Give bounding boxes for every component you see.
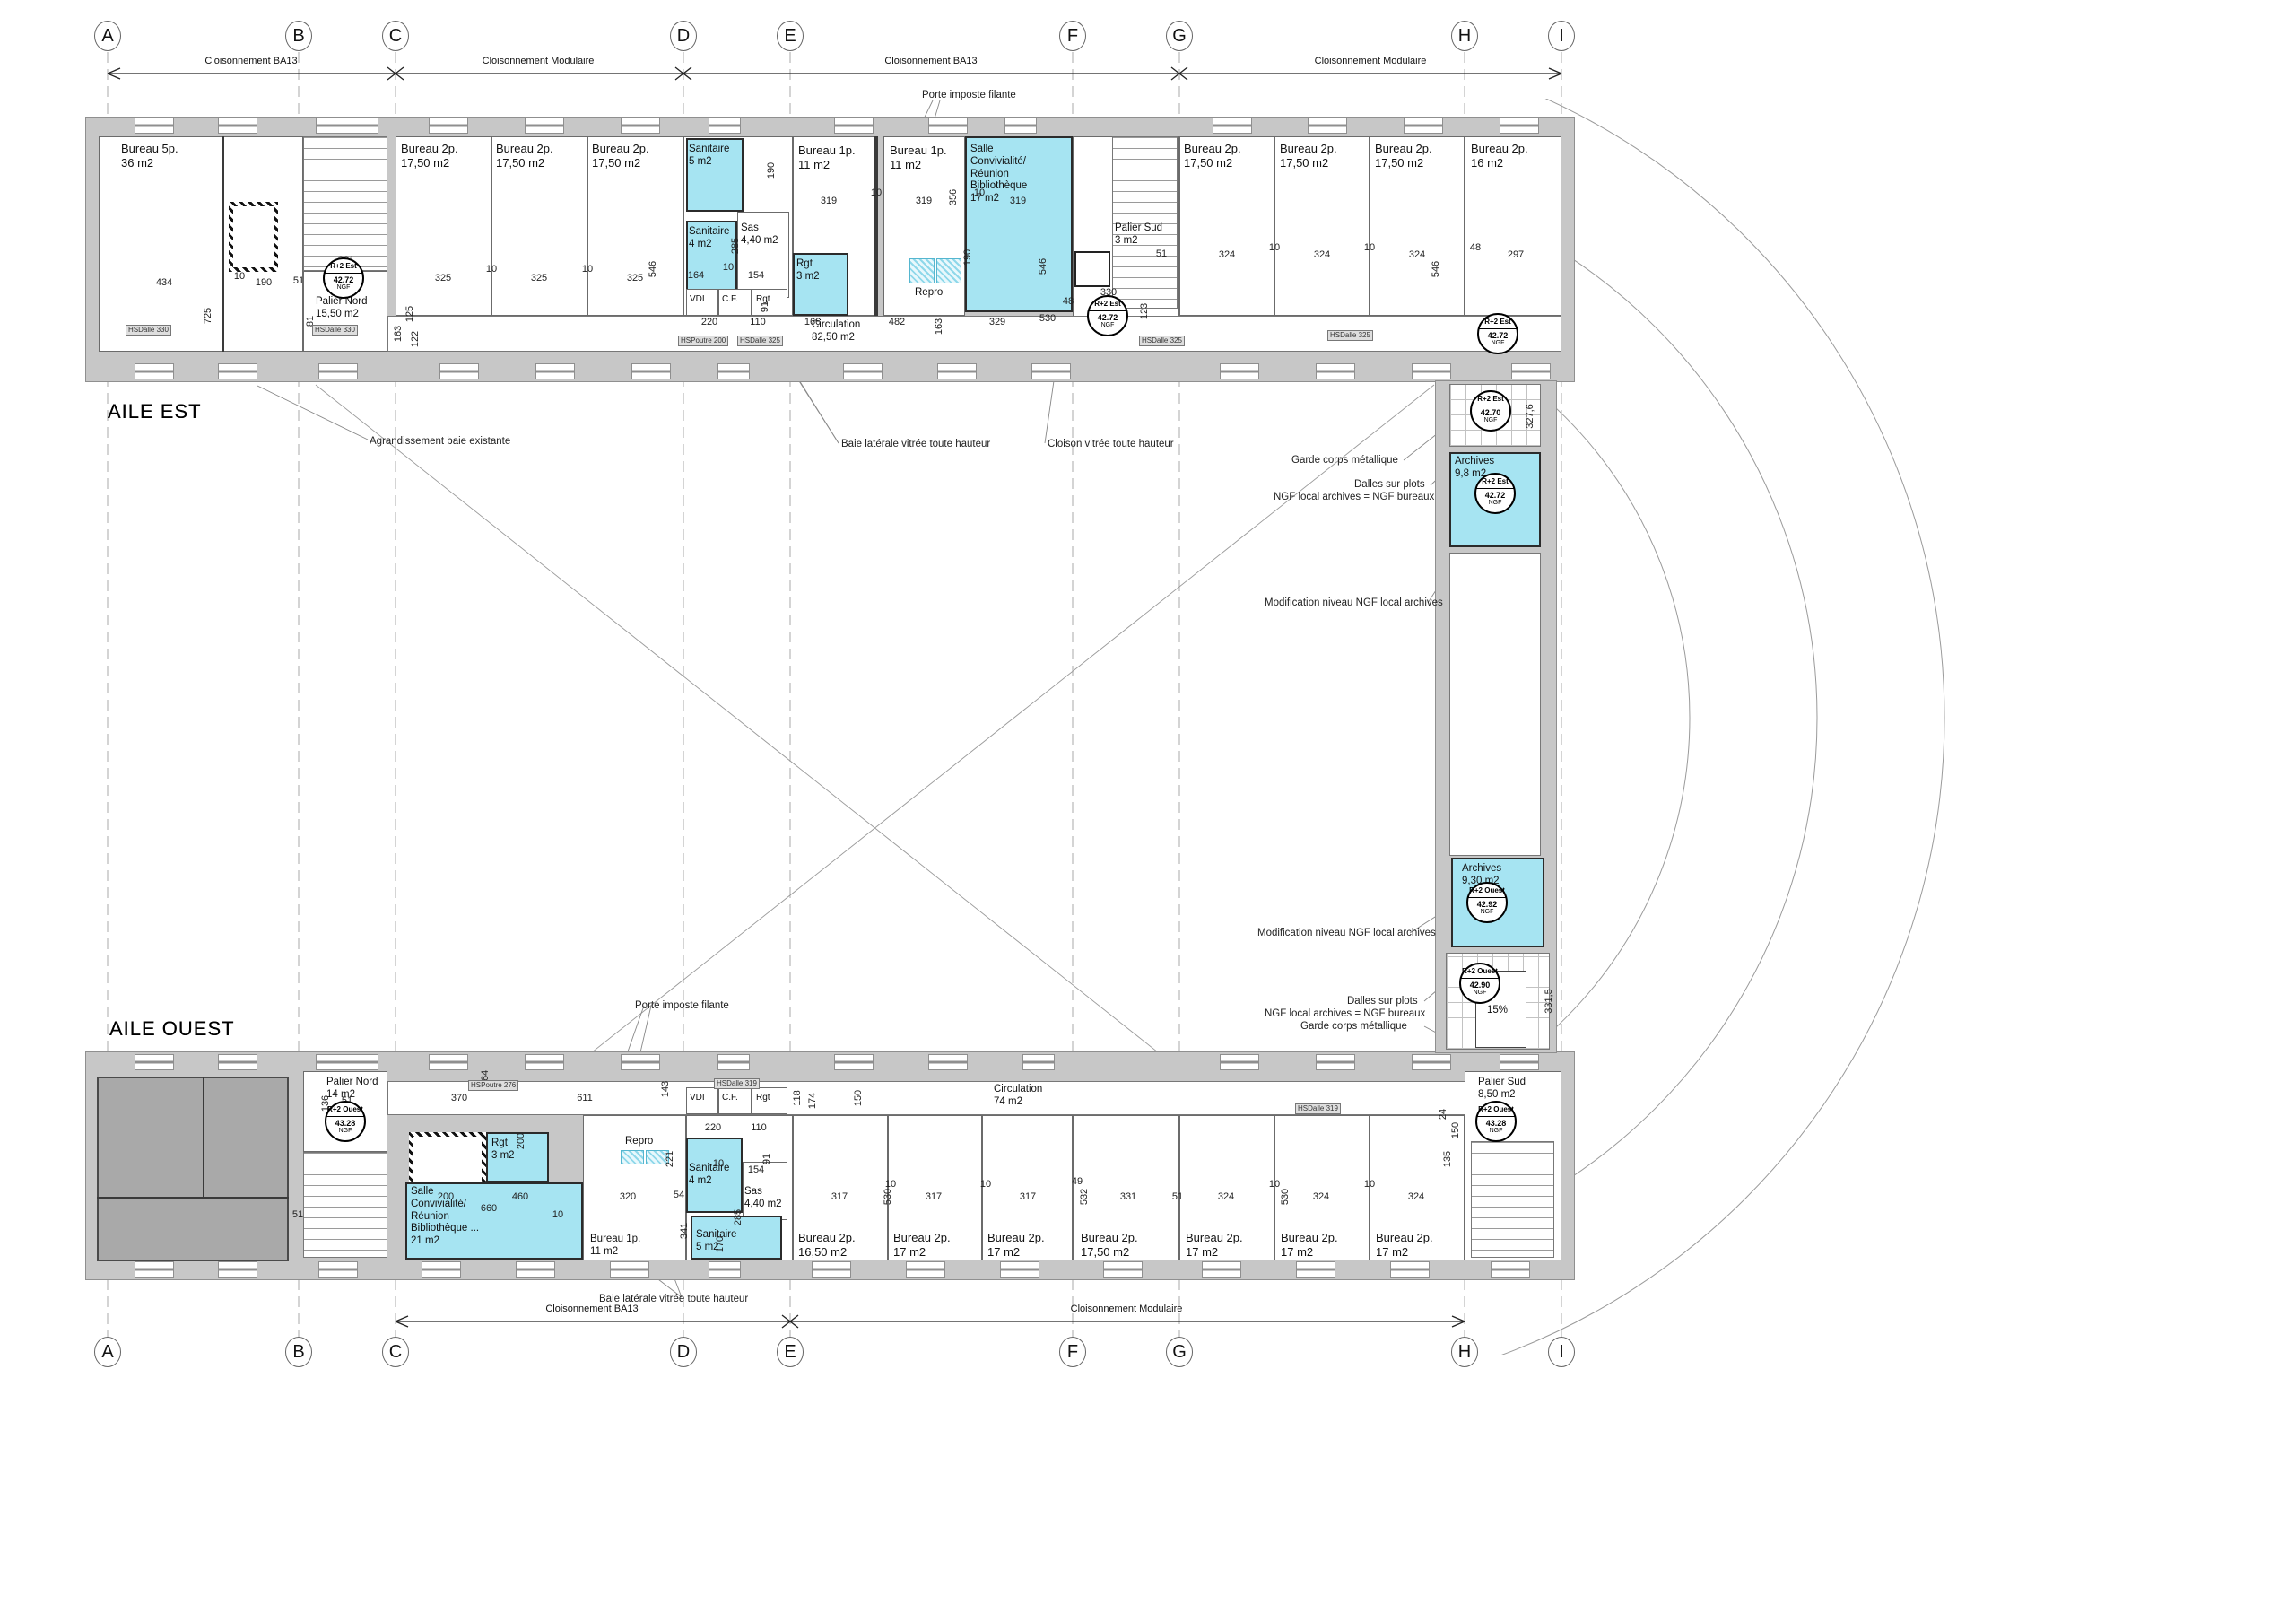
partition — [874, 136, 878, 316]
window — [709, 1261, 741, 1278]
window — [928, 118, 968, 134]
dim-arrow — [396, 1321, 408, 1327]
room-label: Bureau 2p. 17,50 m2 — [1280, 142, 1337, 170]
dim-x-mark — [1171, 67, 1187, 80]
dimension-text: 482 — [889, 317, 905, 327]
partition-dark — [203, 1077, 204, 1199]
dim-x-mark — [675, 67, 691, 80]
partition — [222, 136, 224, 352]
dimension-text: 297 — [1508, 249, 1524, 260]
room-label: Rgt — [756, 1093, 770, 1103]
annotation-text: Garde corps métallique — [1300, 1021, 1407, 1032]
hs-tag: HSPoutre 276 — [468, 1080, 518, 1091]
grid-bubble-I: I — [1548, 1337, 1575, 1367]
window — [1004, 118, 1037, 134]
dimension-text: 325 — [435, 273, 451, 283]
dimension-text: 331 — [1120, 1191, 1136, 1202]
window — [316, 118, 378, 134]
level-stamp: R+2 Ouest43.28NGF — [325, 1101, 366, 1142]
dimension-text: 331,5 — [1544, 989, 1554, 1014]
window — [218, 1054, 257, 1070]
room-label: Bureau 2p. 16 m2 — [1471, 142, 1528, 170]
dimension-text: 154 — [748, 270, 764, 281]
stamp-line: 43.28 — [1477, 1119, 1515, 1128]
window — [834, 1054, 874, 1070]
window — [429, 1054, 468, 1070]
dimension-text: 10 — [1364, 1179, 1375, 1190]
dimension-text: 123 — [1139, 303, 1150, 319]
dim-x-mark — [1171, 67, 1187, 80]
room-label: Bureau 1p. 11 m2 — [590, 1234, 640, 1259]
dimension-text: 319 — [916, 196, 932, 206]
room-label: Palier Sud 3 m2 — [1115, 222, 1162, 248]
dimension-text: 10 — [234, 271, 245, 282]
annotation-text: Porte imposte filante — [922, 90, 1016, 100]
window — [218, 1261, 257, 1278]
dimension-text: 434 — [156, 277, 172, 288]
dimline-label: Cloisonnement BA13 — [545, 1304, 638, 1314]
room-label: Sas 4,40 m2 — [741, 222, 778, 248]
stamp-line: NGF — [1089, 322, 1126, 328]
dimension-text: 10 — [723, 262, 734, 273]
connector-void — [1449, 553, 1541, 856]
dimension-text: 163 — [934, 318, 944, 335]
room-label: Rgt 3 m2 — [796, 258, 820, 283]
annotation-text: Agrandissement baie existante — [370, 436, 510, 447]
dimension-text: 48 — [1470, 242, 1481, 253]
dimension-text: 341 — [679, 1223, 690, 1239]
dim-arrow — [396, 1316, 408, 1321]
stamp-line: NGF — [1476, 500, 1514, 506]
room-label: Bureau 2p. 17 m2 — [987, 1231, 1045, 1259]
room-label: Bureau 2p. 17,50 m2 — [592, 142, 649, 170]
window — [631, 363, 671, 379]
dimension-text: 10 — [974, 187, 985, 198]
level-stamp: R+2 Ouest42.92NGF — [1466, 882, 1508, 923]
dimension-text: 10 — [552, 1209, 563, 1220]
window — [1511, 363, 1551, 379]
annotation-text: Cloison vitrée toute hauteur — [1048, 439, 1174, 449]
hs-tag: HSDalle 319 — [1295, 1103, 1341, 1114]
hs-tag: HSDalle 325 — [737, 336, 783, 346]
dim-arrow — [1549, 68, 1561, 74]
grid-bubble-D: D — [670, 1337, 697, 1367]
stamp-line: 42.90 — [1461, 981, 1499, 990]
dimension-text: 10 — [713, 1158, 724, 1169]
dimension-text: 154 — [748, 1164, 764, 1175]
grid-bubble-A: A — [94, 1337, 121, 1367]
dimension-text: 54 — [674, 1190, 684, 1200]
grid-bubble-H: H — [1451, 21, 1478, 51]
stamp-line: 42.70 — [1472, 408, 1509, 417]
window — [1412, 1054, 1451, 1070]
dimension-text: 190 — [256, 277, 272, 288]
room-label: VDI — [690, 294, 705, 305]
stamp-line: NGF — [1477, 1128, 1515, 1134]
window — [1316, 363, 1355, 379]
dimension-text: 48 — [1063, 296, 1074, 307]
room-label: C.F. — [722, 294, 738, 305]
annotation-text: Garde corps métallique — [1291, 455, 1398, 466]
dimension-text: 317 — [926, 1191, 942, 1202]
annotation-text: Porte imposte filante — [635, 1000, 729, 1011]
stamp-line: R+2 Est — [325, 259, 362, 274]
room-label: Bureau 2p. 17 m2 — [1281, 1231, 1338, 1259]
stamp-line: 42.72 — [1089, 313, 1126, 322]
dimension-text: 200 — [438, 1191, 454, 1202]
grid-bubble-H: H — [1451, 1337, 1478, 1367]
room-label: 15% — [1487, 1005, 1508, 1017]
dimension-text: 327,6 — [1525, 404, 1535, 429]
room-label: Circulation 74 m2 — [994, 1084, 1042, 1109]
window — [812, 1261, 851, 1278]
annotation-text: Dalles sur plots — [1347, 996, 1418, 1007]
dimension-text: 285 — [730, 238, 741, 254]
repro-unit — [909, 258, 935, 283]
stair-north-west — [303, 1152, 387, 1258]
dimension-text: 10 — [980, 1179, 991, 1190]
room-label: Repro — [625, 1136, 653, 1148]
level-stamp: R+2 Est42.72NGF — [1477, 313, 1518, 354]
room-label: Bureau 2p. 17,50 m2 — [401, 142, 458, 170]
dimension-text: 135 — [1442, 1151, 1453, 1167]
window — [135, 118, 174, 134]
window — [318, 1261, 358, 1278]
window — [1000, 1261, 1039, 1278]
stamp-line: R+2 Est — [1479, 315, 1517, 329]
dimline-label: Cloisonnement Modulaire — [1071, 1304, 1183, 1314]
room-label: Bureau 2p. 17,50 m2 — [1375, 142, 1432, 170]
stamp-line: 42.72 — [1476, 491, 1514, 500]
window — [1412, 363, 1451, 379]
dimension-text: 10 — [1364, 242, 1375, 253]
window — [525, 118, 564, 134]
dimension-text: 546 — [1431, 261, 1441, 277]
dimension-text: 163 — [393, 326, 404, 342]
dimension-text: 49 — [1072, 1176, 1083, 1187]
dimline-label: Cloisonnement BA13 — [204, 56, 297, 66]
partition-dark — [97, 1197, 289, 1199]
room-label: Bureau 2p. 17,50 m2 — [496, 142, 553, 170]
grid-bubble-F: F — [1059, 21, 1086, 51]
window — [843, 363, 883, 379]
stamp-line: NGF — [1479, 340, 1517, 346]
room-label: Bureau 2p. 17,50 m2 — [1184, 142, 1241, 170]
dimension-text: 460 — [512, 1191, 528, 1202]
dimension-text: 190 — [766, 162, 777, 179]
stamp-line: 43.28 — [326, 1119, 364, 1128]
annotation-text: Modification niveau NGF local archives — [1265, 597, 1443, 608]
dim-x-mark — [675, 67, 691, 80]
window — [135, 1054, 174, 1070]
room-label: Bureau 1p. 11 m2 — [890, 144, 947, 171]
dimension-text: 220 — [705, 1122, 721, 1133]
dimension-text: 324 — [1313, 1191, 1329, 1202]
stamp-line: R+2 Ouest — [1477, 1103, 1515, 1117]
dimension-text: 660 — [481, 1203, 497, 1214]
window — [1316, 1054, 1355, 1070]
level-stamp: R+2 Est42.72NGF — [1087, 295, 1128, 336]
window — [621, 1054, 660, 1070]
dim-x-mark — [387, 67, 404, 80]
dim-x-mark — [782, 1315, 798, 1328]
dimension-text: 324 — [1219, 249, 1235, 260]
dimension-text: 530 — [1280, 1189, 1291, 1205]
dimension-text: 170 — [715, 1236, 726, 1252]
stair-north-east — [303, 136, 387, 271]
dimension-text: 317 — [1020, 1191, 1036, 1202]
dim-arrow — [108, 68, 120, 74]
dimension-text: 200 — [516, 1133, 526, 1149]
stamp-line: 42.92 — [1468, 900, 1506, 909]
window — [1103, 1261, 1143, 1278]
stair-south-west — [1471, 1141, 1554, 1258]
room-label: Bureau 2p. 17,50 m2 — [1081, 1231, 1138, 1259]
dim-x-mark — [387, 67, 404, 80]
window — [318, 363, 358, 379]
window — [1404, 118, 1443, 134]
room-label: Bureau 5p. 36 m2 — [121, 142, 178, 170]
dimension-text: 10 — [871, 187, 882, 198]
dimline-label: Cloisonnement Modulaire — [483, 56, 595, 66]
dimension-text: 24 — [1438, 1109, 1448, 1120]
stamp-line: NGF — [1472, 417, 1509, 423]
level-stamp: R+2 Est42.72NGF — [323, 257, 364, 299]
window — [937, 363, 977, 379]
dimension-text: 220 — [701, 317, 717, 327]
stamp-line: 42.72 — [1479, 331, 1517, 340]
window — [1022, 1054, 1055, 1070]
annotation-text: Dalles sur plots — [1354, 479, 1425, 490]
window — [717, 363, 750, 379]
dimension-text: 546 — [648, 261, 658, 277]
annotation-text: NGF local archives = NGF bureaux — [1274, 492, 1434, 502]
grid-bubble-D: D — [670, 21, 697, 51]
annotation-text: Modification niveau NGF local archives — [1257, 928, 1436, 938]
room-label: Sas 4,40 m2 — [744, 1186, 782, 1211]
annotation-text: NGF local archives = NGF bureaux — [1265, 1008, 1425, 1019]
grid-bubble-B: B — [285, 1337, 312, 1367]
window — [1202, 1261, 1241, 1278]
grid-bubble-F: F — [1059, 1337, 1086, 1367]
dimension-text: 370 — [451, 1093, 467, 1103]
window — [135, 1261, 174, 1278]
window — [1308, 118, 1347, 134]
dimension-text: 150 — [853, 1090, 864, 1106]
dimension-text: 319 — [821, 196, 837, 206]
window — [516, 1261, 555, 1278]
hs-tag: HSPoutre 200 — [678, 336, 728, 346]
room-label: Palier Nord 15,50 m2 — [316, 296, 368, 321]
dimension-text: 143 — [660, 1081, 671, 1097]
window — [135, 363, 174, 379]
stamp-line: NGF — [1461, 990, 1499, 996]
dimension-text: 125 — [404, 306, 415, 322]
dimension-text: 324 — [1408, 1191, 1424, 1202]
grid-bubble-G: G — [1166, 21, 1193, 51]
dimension-text: 530 — [1039, 313, 1056, 324]
dimension-text: 91 — [761, 1154, 772, 1164]
existing-rooms-west — [97, 1077, 289, 1261]
new-shaft-east — [229, 202, 278, 272]
dim-arrow — [108, 74, 120, 79]
hs-tag: HSDalle 325 — [1327, 330, 1373, 341]
dimension-text: 324 — [1409, 249, 1425, 260]
dimension-text: 10 — [486, 264, 497, 275]
window — [928, 1054, 968, 1070]
window — [1220, 363, 1259, 379]
dimline-label: Cloisonnement Modulaire — [1315, 56, 1427, 66]
grid-bubble-E: E — [777, 21, 804, 51]
window — [316, 1054, 378, 1070]
dimension-text: 51 — [292, 1209, 303, 1220]
room-label: Sanitaire 5 m2 — [689, 144, 729, 169]
dimension-text: 164 — [688, 270, 704, 281]
dimension-text: 51 — [1156, 249, 1167, 259]
window — [429, 118, 468, 134]
dimension-text: 10 — [582, 264, 593, 275]
room-label: Bureau 2p. 17 m2 — [1186, 1231, 1243, 1259]
dimension-text: 325 — [531, 273, 547, 283]
level-stamp: R+2 Est42.72NGF — [1474, 473, 1516, 514]
grid-bubble-A: A — [94, 21, 121, 51]
dimension-text: 319 — [1010, 196, 1026, 206]
window — [1220, 1054, 1259, 1070]
window — [1500, 118, 1539, 134]
window — [610, 1261, 649, 1278]
dimension-text: 118 — [792, 1090, 803, 1106]
room-label: Palier Sud 8,50 m2 — [1478, 1077, 1526, 1102]
dimension-text: 10 — [1269, 242, 1280, 253]
window — [834, 118, 874, 134]
room-label: Rgt 3 m2 — [491, 1138, 515, 1163]
dimension-text: 51 — [293, 275, 304, 286]
dimension-text: 51 — [1172, 1191, 1183, 1202]
hs-tag: HSDalle 330 — [126, 325, 171, 336]
dimension-text: 532 — [1079, 1189, 1090, 1205]
dim-arrow — [1549, 74, 1561, 79]
room-label: Bureau 2p. 17 m2 — [1376, 1231, 1433, 1259]
grid-bubble-I: I — [1548, 21, 1575, 51]
window — [1213, 118, 1252, 134]
stamp-line: NGF — [1468, 909, 1506, 915]
stamp-line: R+2 Ouest — [1468, 884, 1506, 898]
level-stamp: R+2 Ouest43.28NGF — [1475, 1101, 1517, 1142]
repro-unit — [621, 1150, 644, 1164]
annotation-text: Baie latérale vitrée toute hauteur — [841, 439, 990, 449]
window — [1390, 1261, 1430, 1278]
dimension-text: 356 — [948, 189, 959, 205]
repro-unit — [936, 258, 961, 283]
stamp-line: R+2 Ouest — [1461, 964, 1499, 979]
window — [906, 1261, 945, 1278]
dimension-text: 324 — [1218, 1191, 1234, 1202]
stamp-line: R+2 Est — [1476, 475, 1514, 489]
grid-bubble-C: C — [382, 21, 409, 51]
dimension-text: 10 — [1269, 1179, 1280, 1190]
stamp-line: NGF — [326, 1128, 364, 1134]
wing-east-title: AILE EST — [108, 400, 202, 423]
dimension-text: 221 — [665, 1151, 675, 1167]
window — [621, 118, 660, 134]
grid-bubble-B: B — [285, 21, 312, 51]
stamp-line: NGF — [325, 284, 362, 291]
stamp-line: 42.72 — [325, 275, 362, 284]
hs-tag: HSDalle 319 — [714, 1078, 760, 1089]
grid-bubble-G: G — [1166, 1337, 1193, 1367]
annotation-text: Baie latérale vitrée toute hauteur — [599, 1294, 748, 1304]
dimension-text: 91 — [760, 301, 770, 312]
window — [1500, 1054, 1539, 1070]
floor-plan-canvas: Bureau 5p. 36 m2Bureau 2p. 17,50 m2Burea… — [0, 0, 2296, 1622]
room-label: Bureau 2p. 17 m2 — [893, 1231, 951, 1259]
window — [525, 1054, 564, 1070]
circulation-east — [387, 316, 1561, 352]
dimension-text: 110 — [751, 1122, 767, 1133]
window — [709, 118, 741, 134]
stamp-line: R+2 Ouest — [326, 1103, 364, 1117]
grid-bubble-E: E — [777, 1337, 804, 1367]
dimension-text: 530 — [883, 1189, 893, 1205]
dim-arrow — [1452, 1321, 1465, 1327]
level-stamp: R+2 Est42.70NGF — [1470, 390, 1511, 432]
elevator-east — [1074, 251, 1110, 287]
hs-tag: HSDalle 325 — [1139, 336, 1185, 346]
dimension-text: 166 — [804, 317, 821, 327]
window — [439, 363, 479, 379]
room-label: Sanitaire 4 m2 — [689, 226, 729, 251]
room-label: VDI — [690, 1093, 705, 1103]
window — [717, 1054, 750, 1070]
dimension-text: 122 — [410, 331, 421, 347]
dimension-text: 320 — [620, 1191, 636, 1202]
window — [535, 363, 575, 379]
room-label: Repro — [915, 287, 943, 300]
level-stamp: R+2 Ouest42.90NGF — [1459, 963, 1500, 1004]
window — [1491, 1261, 1530, 1278]
dimline-label: Cloisonnement BA13 — [884, 56, 977, 66]
dimension-text: 725 — [203, 308, 213, 324]
stamp-line: R+2 Est — [1472, 392, 1509, 406]
dimension-text: 325 — [627, 273, 643, 283]
dimension-text: 611 — [577, 1093, 593, 1103]
room-label: C.F. — [722, 1093, 738, 1103]
room-label: Bureau 2p. 16,50 m2 — [798, 1231, 856, 1259]
stamp-line: R+2 Est — [1089, 297, 1126, 311]
window — [1296, 1261, 1335, 1278]
window — [218, 363, 257, 379]
wing-west-title: AILE OUEST — [109, 1017, 235, 1041]
dim-x-mark — [782, 1315, 798, 1328]
dimension-text: 546 — [1038, 258, 1048, 275]
dim-arrow — [1452, 1316, 1465, 1321]
dimension-text: 174 — [807, 1093, 818, 1109]
dimension-text: 150 — [1450, 1122, 1461, 1138]
dimension-text: 285 — [733, 1209, 744, 1225]
dimension-text: 10 — [885, 1179, 896, 1190]
hs-tag: HSDalle 330 — [312, 325, 358, 336]
dimension-text: 324 — [1314, 249, 1330, 260]
window — [422, 1261, 461, 1278]
leader-line — [257, 386, 368, 440]
dimension-text: 110 — [750, 317, 766, 327]
grid-bubble-C: C — [382, 1337, 409, 1367]
window — [218, 118, 257, 134]
window — [1031, 363, 1071, 379]
dimension-text: 317 — [831, 1191, 848, 1202]
dimension-text: 329 — [989, 317, 1005, 327]
dimension-text: 190 — [962, 249, 973, 266]
